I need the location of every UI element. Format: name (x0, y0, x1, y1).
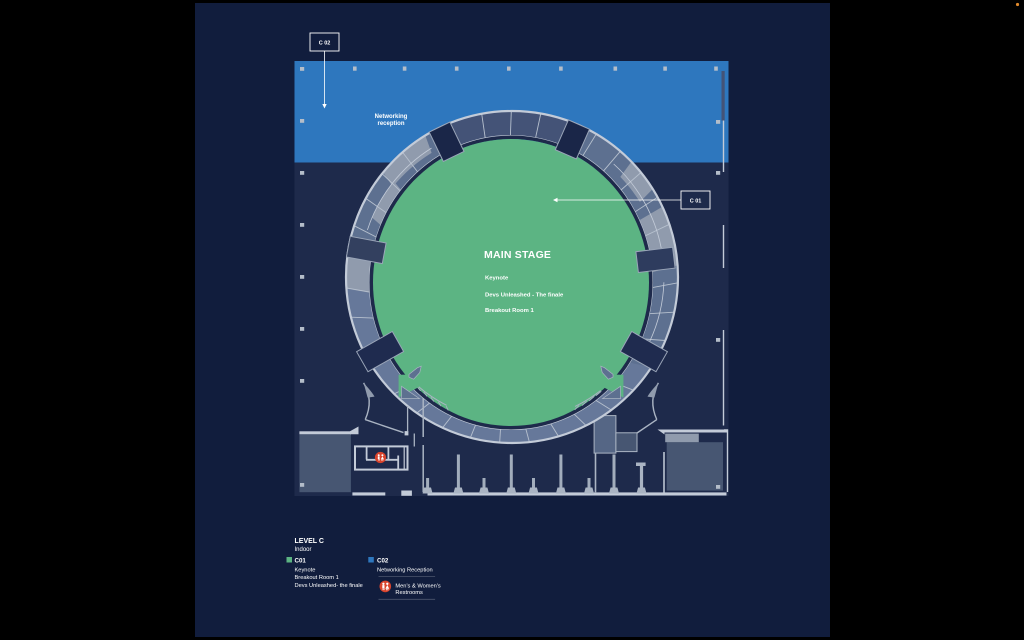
svg-text:Breakout Room 1: Breakout Room 1 (295, 575, 339, 581)
svg-text:Devs Unleashed- the finale: Devs Unleashed- the finale (295, 583, 363, 589)
svg-text:C02: C02 (377, 558, 389, 565)
svg-text:LEVEL C: LEVEL C (295, 538, 324, 545)
svg-text:Breakout Room 1: Breakout Room 1 (485, 308, 534, 314)
svg-text:reception: reception (377, 121, 404, 127)
svg-text:Networking Reception: Networking Reception (377, 567, 433, 573)
svg-text:Indoor: Indoor (295, 547, 312, 553)
svg-text:Men's & Women's: Men's & Women's (395, 584, 441, 590)
svg-text:Devs Unleashed - The finale: Devs Unleashed - The finale (485, 292, 564, 298)
svg-text:Keynote: Keynote (295, 568, 316, 574)
svg-text:Restrooms: Restrooms (395, 590, 423, 596)
svg-text:Networking: Networking (375, 114, 408, 120)
svg-text:C 01: C 01 (690, 199, 702, 205)
svg-text:Keynote: Keynote (485, 276, 509, 282)
svg-text:C 02: C 02 (319, 41, 331, 47)
svg-text:MAIN STAGE: MAIN STAGE (484, 249, 551, 261)
svg-text:C01: C01 (295, 558, 307, 565)
